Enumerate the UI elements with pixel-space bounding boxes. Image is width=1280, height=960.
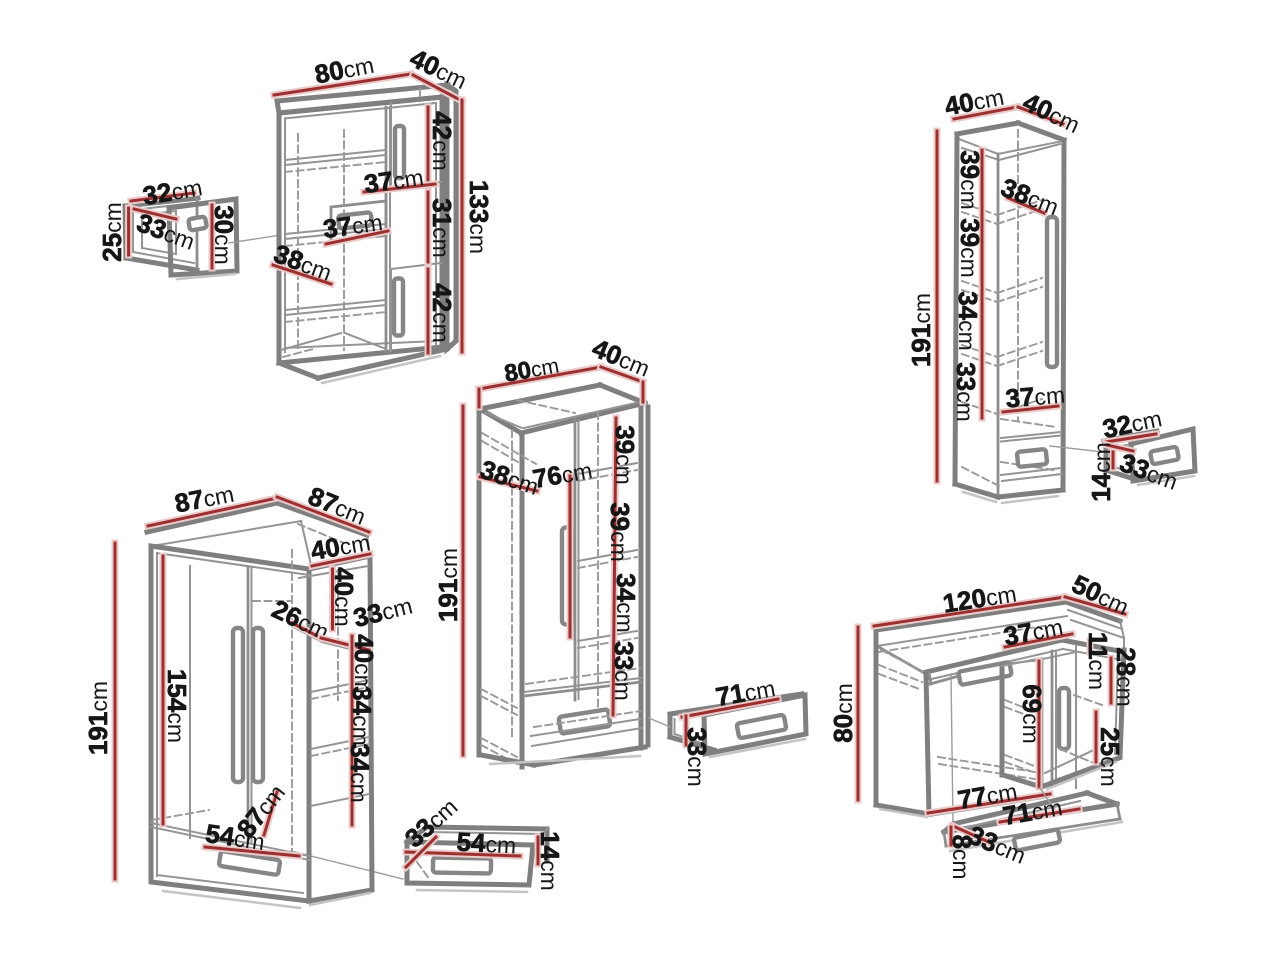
svg-text:33cm: 33cm [682,727,712,787]
svg-text:39cm: 39cm [610,425,640,485]
svg-text:39cm: 39cm [955,150,985,210]
svg-text:25cm: 25cm [1095,727,1125,787]
svg-text:25cm: 25cm [97,202,127,262]
svg-text:80cm: 80cm [828,683,858,743]
svg-text:40cm: 40cm [349,634,379,694]
svg-text:34cm: 34cm [953,291,983,351]
svg-text:39cm: 39cm [605,502,635,562]
svg-text:133cm: 133cm [464,180,494,254]
svg-text:34cm: 34cm [347,686,377,746]
svg-text:191cm: 191cm [906,293,936,367]
svg-text:69cm: 69cm [1017,684,1047,744]
svg-text:31cm: 31cm [427,198,457,258]
svg-text:30cm: 30cm [209,205,239,265]
svg-text:8cm: 8cm [947,834,977,879]
svg-text:154cm: 154cm [162,669,192,743]
svg-text:33cm: 33cm [609,641,639,701]
svg-text:191cm: 191cm [433,548,463,622]
svg-text:39cm: 39cm [955,218,985,278]
svg-text:14cm: 14cm [1086,442,1116,502]
svg-text:191cm: 191cm [83,681,113,755]
svg-text:34cm: 34cm [345,743,375,803]
svg-text:34cm: 34cm [611,573,641,633]
svg-text:42cm: 42cm [427,283,457,343]
svg-text:54cm: 54cm [456,826,517,859]
svg-text:42cm: 42cm [427,111,457,171]
svg-text:28cm: 28cm [1111,647,1141,707]
svg-text:33cm: 33cm [951,362,981,422]
svg-text:14cm: 14cm [535,831,565,891]
